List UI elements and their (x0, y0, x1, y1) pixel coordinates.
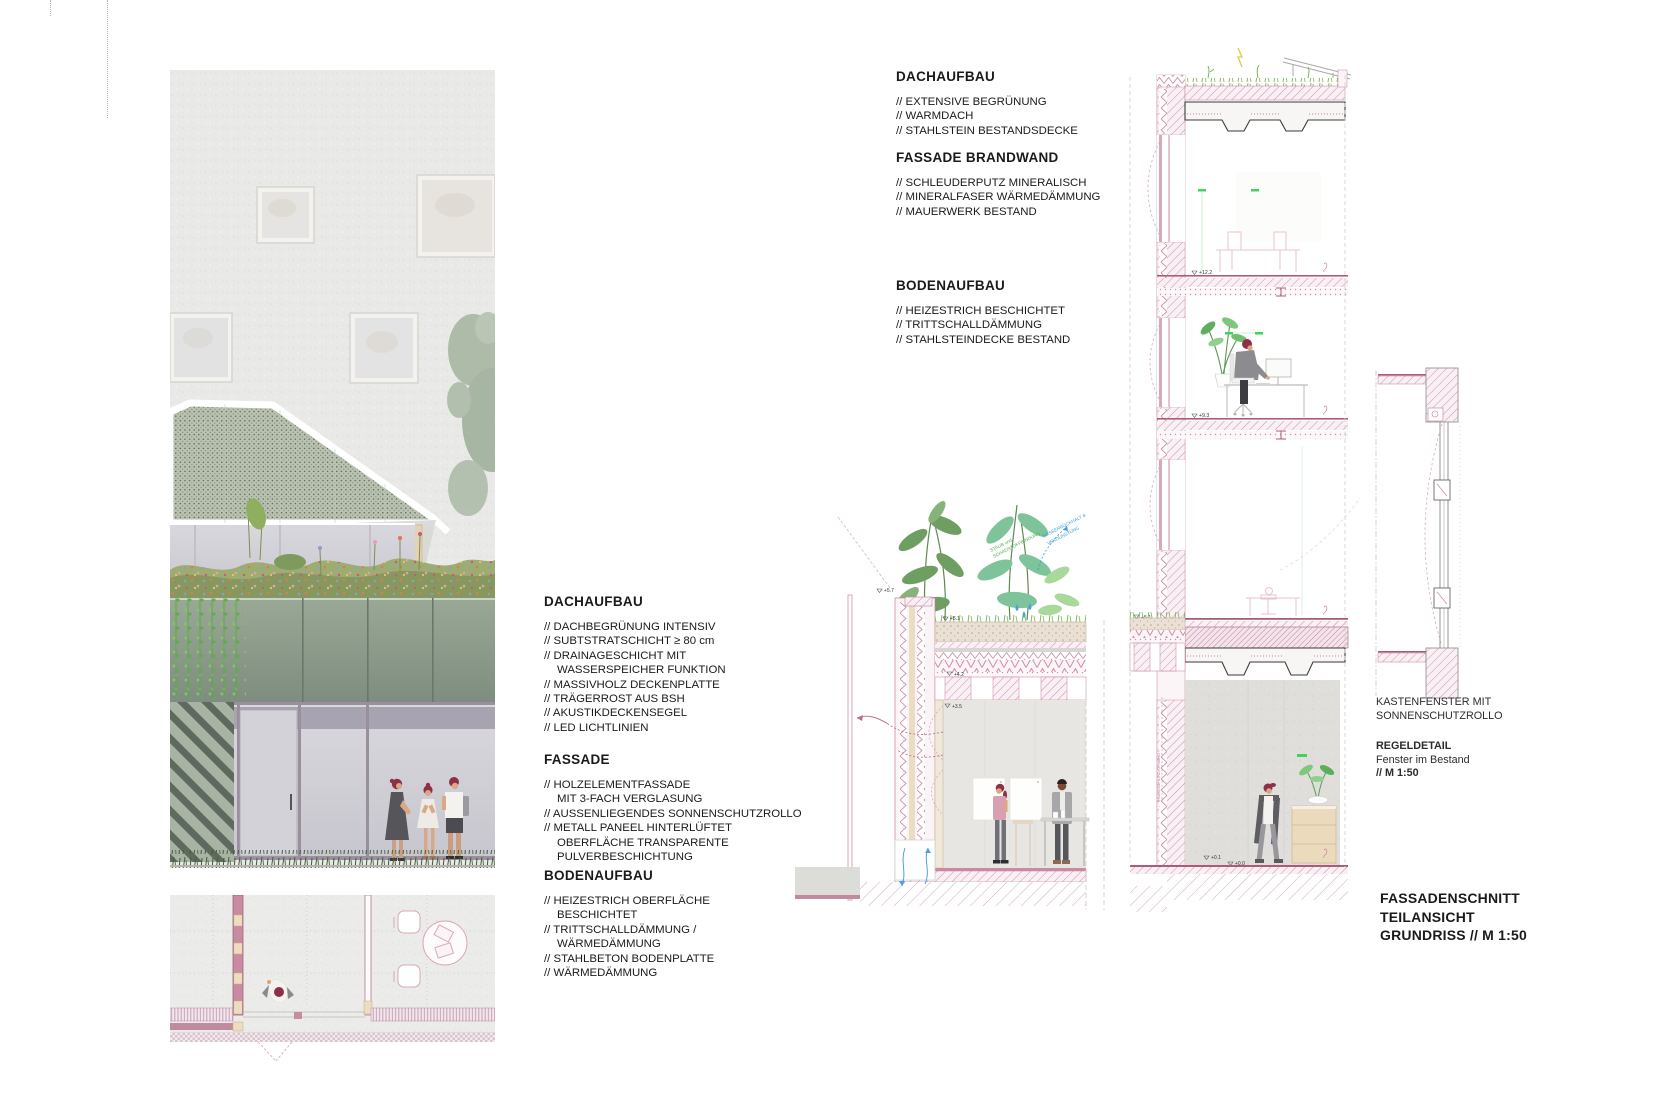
legend-line: // EXTENSIVE BEGRÜNUNG (896, 95, 1156, 109)
seated-person (1230, 339, 1270, 417)
striped-pylon (170, 702, 234, 862)
legend-group-brandwand: FASSADE BRANDWAND // SCHLEUDERPUTZ MINER… (896, 150, 1156, 219)
svg-text:+12.2: +12.2 (1199, 270, 1212, 276)
caption-line: KASTENFENSTER MIT (1376, 696, 1503, 710)
svg-text:+5.1: +5.1 (950, 616, 960, 622)
door-pivot (294, 1012, 302, 1019)
legend-group-dachaufbau: DACHAUFBAU // DACHBEGRÜNUNG INTENSIV // … (544, 594, 804, 735)
door-swing (258, 1042, 292, 1061)
section-new-annex: STAUB und SCHADSTOFFBINDUNG WASSERRÜCKHA… (795, 470, 1107, 920)
metal-panel-band (170, 598, 495, 702)
legend-heading: FASSADE (544, 752, 804, 767)
door-handle (290, 794, 292, 810)
legend-line: // WÄRMEDÄMMUNG (544, 966, 804, 980)
title-line: FASSADENSCHNITT (1380, 889, 1527, 908)
annex-interior: +3.5 (857, 700, 1089, 868)
plant-squiggle (1324, 263, 1327, 272)
legend-line: // TRITTSCHALLDÄMMUNG (896, 318, 1156, 332)
facade-elevation-rendering (170, 70, 495, 873)
legend-line: // STAHLSTEINDECKE BESTAND (896, 333, 1156, 347)
legend-line: // METALL PANEEL HINTERLÜFTET (544, 821, 804, 835)
room-top (1198, 172, 1327, 272)
legend-heading: BODENAUFBAU (896, 278, 1156, 293)
vent-box (895, 840, 935, 886)
legend-heading: DACHAUFBAU (896, 69, 1156, 84)
regeldetail-title: REGELDETAIL (1376, 740, 1470, 754)
legend-line: // SUBTSTRATSCHICHT ≥ 80 cm (544, 634, 804, 648)
legend-line: // WARMDACH (896, 109, 1156, 123)
tree (447, 312, 495, 516)
floor-plan-fragment (170, 895, 495, 1072)
kastenfenster-caption: KASTENFENSTER MIT SONNENSCHUTZROLLO (1376, 696, 1503, 723)
legend-line: PULVERBESCHICHTUNG (544, 850, 804, 864)
legend-group-fassade: FASSADE // HOLZELEMENTFASSADE MIT 3-FACH… (544, 752, 804, 864)
legend-group-bodenaufbau: BODENAUFBAU // HEIZESTRICH OBERFLÄCHE BE… (544, 868, 804, 980)
legend-line: // MINERALFASER WÄRMEDÄMMUNG (896, 190, 1156, 204)
trim-mark (107, 0, 108, 118)
detail-sill (1378, 648, 1458, 698)
legend-line: // AKUSTIKDECKENSEGEL (544, 706, 804, 720)
legend-group-dachaufbau-bestand: DACHAUFBAU // EXTENSIVE BEGRÜNUNG // WAR… (896, 69, 1156, 138)
exterior-ground (795, 867, 860, 897)
legend-line: // HEIZESTRICH OBERFLÄCHE (544, 894, 804, 908)
slab: +12.2 (1157, 270, 1348, 296)
monitor (1266, 359, 1291, 377)
legend-line: // HEIZESTRICH BESCHICHTET (896, 304, 1156, 318)
legend-line: // MAUERWERK BESTAND (896, 205, 1156, 219)
regeldetail-caption: REGELDETAIL Fenster im Bestand // M 1:50 (1376, 740, 1470, 781)
sheet-title: FASSADENSCHNITT TEILANSICHT GRUNDRISS //… (1380, 889, 1527, 945)
energy-spark-icon (1238, 48, 1242, 67)
ground-hatch (860, 882, 1086, 906)
legend-line: WASSERSPEICHER FUNKTION (544, 663, 804, 677)
window-regeldetail-drawing (1368, 362, 1468, 712)
title-line: GRUNDRISS // M 1:50 (1380, 926, 1527, 945)
regeldetail-subtitle: Fenster im Bestand (1376, 754, 1470, 768)
legend-line: // TRITTSCHALLDÄMMUNG / (544, 923, 804, 937)
regeldetail-scale: // M 1:50 (1376, 767, 1470, 781)
legend-line: // MASSIVHOLZ DECKENPLATTE (544, 678, 804, 692)
legend-line: WÄRMEDÄMMUNG (544, 937, 804, 951)
svg-text:+3.5: +3.5 (952, 704, 962, 710)
legend-line: // LED LICHTLINIEN (544, 721, 804, 735)
presentation-board: DACHAUFBAU // DACHBEGRÜNUNG INTENSIV // … (0, 0, 1667, 1110)
legend-line: // DACHBEGRÜNUNG INTENSIV (544, 620, 804, 634)
detail-lintel (1378, 368, 1458, 422)
plan-wall-bottom (170, 1023, 233, 1030)
detail-reference-curve (1280, 498, 1360, 570)
detail-window (1425, 422, 1460, 650)
annex-roof-junction (1130, 612, 1185, 671)
legend-line: MIT 3-FACH VERGLASUNG (544, 792, 804, 806)
ground-floor (170, 702, 495, 868)
level-marker: +5.7 (877, 588, 894, 594)
section-existing-building: +12.2 +9.3 (1128, 42, 1364, 917)
legend-group-boden-bestand: BODENAUFBAU // HEIZESTRICH BESCHICHTET /… (896, 278, 1156, 347)
slab (1157, 418, 1348, 439)
svg-text:+4.2: +4.2 (954, 672, 964, 678)
paving-band (170, 1032, 495, 1042)
legend-line: // HOLZELEMENTFASSADE (544, 778, 804, 792)
legend-line: // SCHLEUDERPUTZ MINERALISCH (896, 176, 1156, 190)
caption-line: SONNENSCHUTZROLLO (1376, 710, 1503, 724)
green-roof-buildup: +5.1 +4.2 (935, 614, 1086, 700)
legend-line: BESCHICHTET (544, 908, 804, 922)
legend-heading: FASSADE BRANDWAND (896, 150, 1156, 165)
legend-heading: BODENAUFBAU (544, 868, 804, 883)
title-line: TEILANSICHT (1380, 908, 1527, 927)
room-desk: +9.3 (1192, 315, 1327, 419)
trim-mark (50, 0, 51, 16)
insulated-brandwand (1148, 75, 1185, 867)
legend-line: // TRÄGERROST AUS BSH (544, 692, 804, 706)
existing-roof (1185, 65, 1347, 131)
entrance-door (240, 710, 297, 856)
kastenfenster-in-wall (1148, 135, 1185, 550)
svg-text:+5.7: +5.7 (884, 588, 894, 594)
legend-line: // AUSSENLIEGENDES SONNENSCHUTZROLLO (544, 807, 804, 821)
ground-hatch (1130, 874, 1348, 912)
svg-text:+0.1: +0.1 (1211, 855, 1221, 861)
whiteboard (1010, 778, 1042, 820)
legend-line: // STAHLBETON BODENPLATTE (544, 952, 804, 966)
legend-line: // DRAINAGESCHICHT MIT (544, 649, 804, 663)
brandschutz-label: BRANDSCHUTZVORHANG (1156, 753, 1161, 802)
wood-sideboard (1292, 806, 1336, 863)
legend-line: OBERFLÄCHE TRANSPARENTE (544, 836, 804, 850)
legend-heading: DACHAUFBAU (544, 594, 804, 609)
legend-line: // STAHLSTEIN BESTANDSDECKE (896, 124, 1156, 138)
